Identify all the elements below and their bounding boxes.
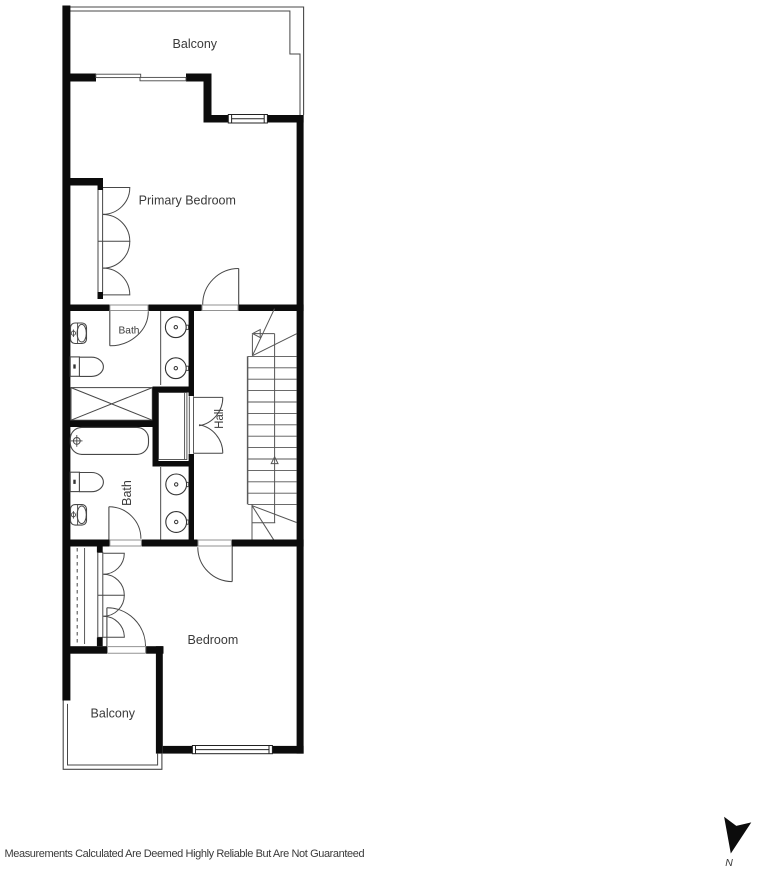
svg-text:Bath: Bath — [120, 480, 134, 506]
svg-text:Hall: Hall — [214, 409, 226, 429]
svg-text:Primary Bedroom: Primary Bedroom — [139, 194, 236, 208]
svg-text:Bath: Bath — [119, 325, 140, 336]
svg-text:N: N — [725, 857, 733, 869]
svg-text:Measurements Calculated Are De: Measurements Calculated Are Deemed Highl… — [5, 848, 365, 860]
svg-text:Balcony: Balcony — [91, 707, 136, 721]
svg-text:Bedroom: Bedroom — [188, 633, 239, 647]
svg-text:Balcony: Balcony — [173, 37, 218, 51]
